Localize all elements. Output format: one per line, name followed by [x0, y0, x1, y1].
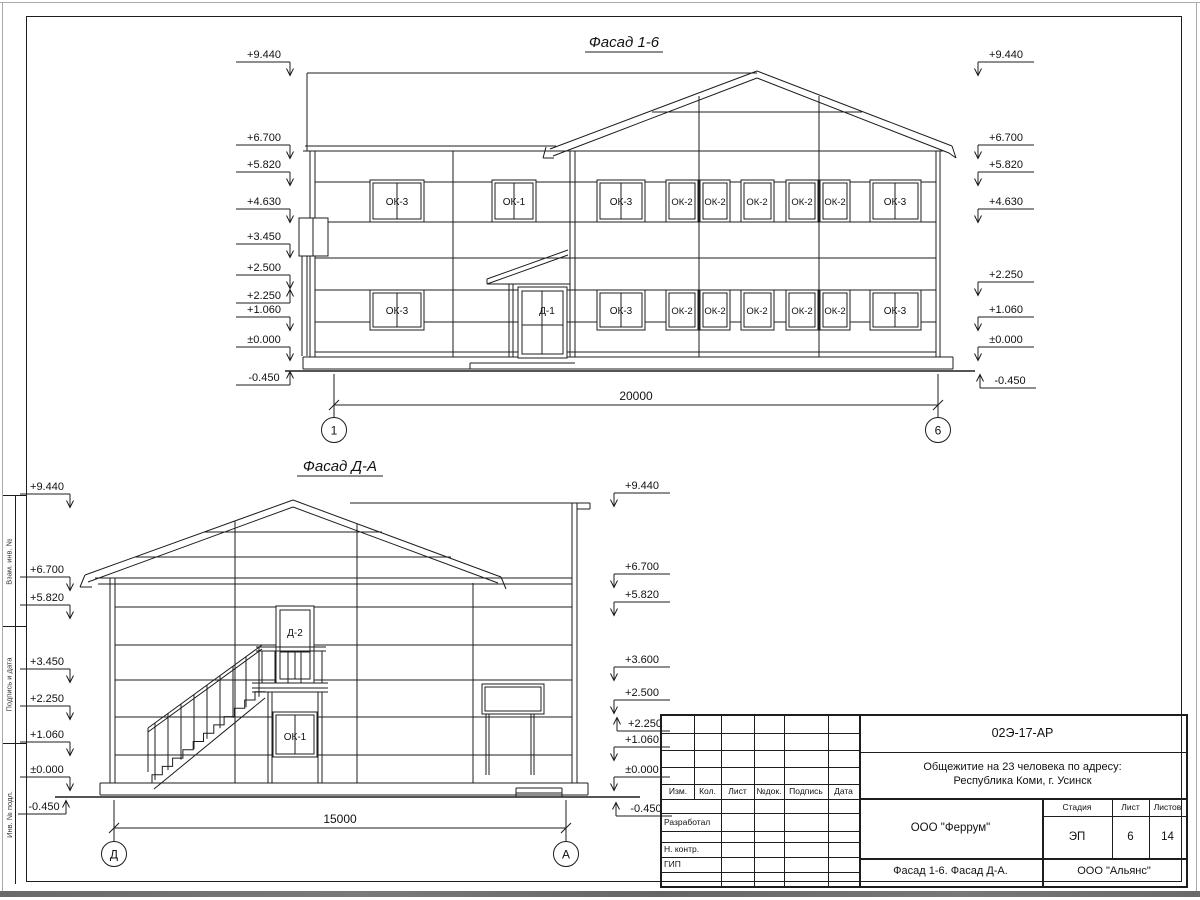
row-nkontr: Н. контр. — [664, 842, 720, 857]
elevation-mark: +1.060 — [30, 729, 64, 741]
window-ok1-label: ОК-1 — [284, 732, 307, 743]
elevation-mark: ±0.000 — [989, 334, 1023, 346]
elevation-mark: +9.440 — [989, 49, 1023, 61]
contractor-name: ООО "Альянс" — [1042, 858, 1186, 886]
elevation-mark: +2.250 — [989, 269, 1023, 281]
sheet-label: Лист — [1112, 798, 1149, 816]
window-label: ОК-2 — [824, 197, 845, 208]
window-label: ОК-2 — [746, 197, 767, 208]
elevation-mark: -0.450 — [248, 372, 279, 384]
elevation-mark: ±0.000 — [30, 764, 64, 776]
facade-1-6-roof — [303, 71, 956, 158]
stage-value: ЭП — [1042, 816, 1112, 858]
facade-d-a-base — [55, 783, 640, 797]
col-data: Дата — [828, 784, 859, 799]
facade-1-6-entrance: Д-1 — [487, 250, 570, 358]
axis-bubble-6: 6 — [935, 424, 942, 438]
col-kol: Кол. — [694, 784, 721, 799]
facade-d-a-roof — [80, 500, 572, 589]
elevation-mark: +1.060 — [625, 734, 659, 746]
window-label: ОК-2 — [671, 306, 692, 317]
drawing-sheet: Взам. инв. № Подпись и дата Инв. № подл.… — [0, 0, 1200, 900]
facade-1-6-marks-right: +9.440 +6.700 +5.820 +4.630 +2.250 +1.06… — [975, 49, 1037, 388]
elevation-mark: +1.060 — [989, 304, 1023, 316]
facade-1-6-base — [285, 357, 975, 371]
elevation-mark: +6.700 — [247, 132, 281, 144]
window-label: ОК-2 — [824, 306, 845, 317]
col-podpis: Подпись — [784, 784, 828, 799]
facade-1-6-title: Фасад 1-6 — [589, 34, 660, 51]
elevation-mark: +3.450 — [30, 656, 64, 668]
elevation-mark: +4.630 — [989, 196, 1023, 208]
sheets-value: 14 — [1149, 816, 1186, 858]
dimension-value: 15000 — [323, 812, 357, 826]
elevation-mark: +5.820 — [989, 159, 1023, 171]
facade-d-a-walls — [110, 578, 572, 783]
elevation-mark: -0.450 — [28, 801, 59, 813]
elevation-mark: +5.820 — [247, 159, 281, 171]
facade-d-a-entrance: Д-2 ОК-1 — [252, 606, 328, 783]
elevation-mark: +1.060 — [247, 304, 281, 316]
elevation-mark: +3.600 — [625, 654, 659, 666]
elevation-mark: +2.250 — [628, 718, 662, 730]
elevation-mark: +6.700 — [989, 132, 1023, 144]
axis-bubble-1: 1 — [331, 424, 338, 438]
elevation-mark: +2.500 — [247, 262, 281, 274]
facade-d-a: Фасад Д-А — [18, 458, 672, 867]
elevation-mark: ±0.000 — [625, 764, 659, 776]
project-line1: Общежитие на 23 человека по адресу: — [923, 761, 1121, 775]
window-label: ОК-2 — [791, 197, 812, 208]
elevation-mark: +3.450 — [247, 231, 281, 243]
stage-label: Стадия — [1042, 798, 1112, 816]
elevation-mark: +2.250 — [30, 693, 64, 705]
window-label: ОК-2 — [704, 197, 725, 208]
window-label: ОК-2 — [671, 197, 692, 208]
elevation-mark: +9.440 — [30, 481, 64, 493]
window-label: ОК-1 — [503, 197, 526, 208]
door-d2-label: Д-2 — [287, 628, 303, 639]
door-d1-label: Д-1 — [539, 306, 555, 317]
col-list: Лист — [721, 784, 754, 799]
elevation-mark: -0.450 — [630, 803, 661, 815]
window-label: ОК-3 — [884, 306, 907, 317]
window-label: ОК-3 — [610, 306, 633, 317]
elevation-mark: +2.250 — [247, 290, 281, 302]
window-label: ОК-3 — [386, 197, 409, 208]
elevation-mark: +2.500 — [625, 687, 659, 699]
doc-number: 02Э-17-АР — [859, 716, 1186, 752]
facade-1-6-dimension: 20000 1 6 — [322, 374, 951, 443]
drawing-title: Фасад 1-6. Фасад Д-А. — [859, 858, 1042, 886]
elevation-mark: +4.630 — [247, 196, 281, 208]
project-line2: Республика Коми, г. Усинск — [953, 775, 1091, 789]
facade-d-a-signboard — [482, 684, 544, 775]
project-name: Общежитие на 23 человека по адресу: Респ… — [859, 752, 1186, 798]
window-label: ОК-3 — [884, 197, 907, 208]
facade-1-6-marks-left: +9.440 +6.700 +5.820 +4.630 +3.450 +2.50… — [236, 49, 294, 385]
facade-d-a-marks-left: +9.440 +6.700 +5.820 +3.450 +2.250 +1.06… — [18, 481, 74, 814]
window-label: ОК-2 — [704, 306, 725, 317]
elevation-mark: ±0.000 — [247, 334, 281, 346]
col-izm: Изм. — [662, 784, 694, 799]
row-gip: ГИП — [664, 857, 720, 872]
elevation-mark: +6.700 — [30, 564, 64, 576]
sheet-value: 6 — [1112, 816, 1149, 858]
title-block: 02Э-17-АР Общежитие на 23 человека по ад… — [660, 714, 1188, 888]
elevation-mark: +9.440 — [247, 49, 281, 61]
elevation-mark: +6.700 — [625, 561, 659, 573]
window-label: ОК-3 — [610, 197, 633, 208]
facade-d-a-title: Фасад Д-А — [303, 458, 377, 475]
sheets-label: Листов — [1149, 798, 1186, 816]
org-name: ООО "Феррум" — [859, 798, 1042, 858]
axis-bubble-d: Д — [110, 848, 118, 862]
window-label: ОК-2 — [791, 306, 812, 317]
col-dok: №док. — [754, 784, 784, 799]
elevation-mark: -0.450 — [994, 375, 1025, 387]
axis-bubble-a: А — [562, 848, 570, 862]
row-razrabotal: Разработал — [664, 813, 720, 831]
window-label: ОК-3 — [386, 306, 409, 317]
facade-d-a-dimension: 15000 Д А — [102, 800, 579, 867]
elevation-mark: +5.820 — [625, 589, 659, 601]
facade-1-6: Фасад 1-6 — [236, 34, 1036, 443]
dimension-value: 20000 — [619, 389, 653, 403]
window-label: ОК-2 — [746, 306, 767, 317]
elevation-mark: +5.820 — [30, 592, 64, 604]
elevation-mark: +9.440 — [625, 480, 659, 492]
